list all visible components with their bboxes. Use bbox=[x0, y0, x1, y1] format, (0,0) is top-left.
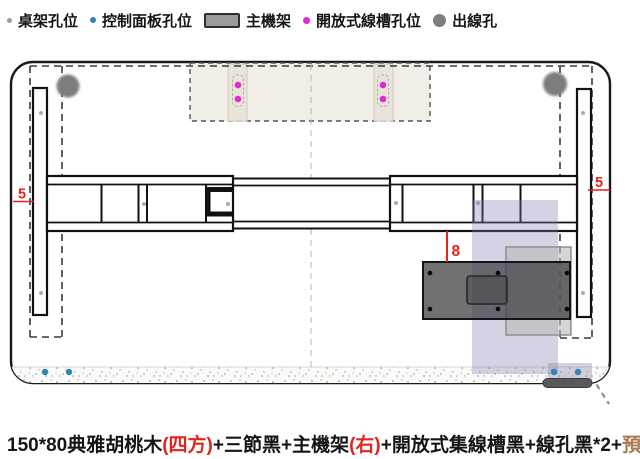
legend-item-desk-frame-holes: 桌架孔位 bbox=[7, 10, 78, 31]
caption-segment: +三節黑+主機架 bbox=[213, 435, 349, 456]
caption-segment: +開放式集線槽黑+線孔黑*2+ bbox=[381, 435, 622, 456]
legend: 桌架孔位 控制面板孔位 主機架 開放式線槽孔位 出線孔 bbox=[7, 8, 497, 32]
caption-segment: 預埋螺母 bbox=[622, 435, 640, 456]
main-unit bbox=[423, 262, 570, 319]
main-unit-motor-box bbox=[467, 276, 507, 304]
cable-tray-hole bbox=[235, 96, 242, 103]
cable-outlet-hole-right bbox=[543, 72, 567, 96]
large-gray-dot-icon bbox=[433, 14, 446, 27]
tray-mount-tab bbox=[228, 64, 247, 121]
cable-tray-hole bbox=[380, 82, 387, 89]
legend-label: 主機架 bbox=[246, 10, 291, 31]
left-leg-beam bbox=[33, 88, 47, 315]
legend-item-cable-tray-holes: 開放式線槽孔位 bbox=[303, 10, 421, 31]
dimension-right-gap: 5 bbox=[595, 175, 603, 191]
legend-label: 開放式線槽孔位 bbox=[316, 10, 421, 31]
cable-tray-hole bbox=[380, 96, 387, 103]
caption-segment: (四方) bbox=[162, 435, 213, 456]
right-leg-beam bbox=[577, 89, 591, 317]
gray-rect-icon bbox=[204, 13, 240, 28]
tray-mount-tab bbox=[374, 64, 393, 121]
legend-label: 控制面板孔位 bbox=[102, 10, 192, 31]
product-caption: 150*80典雅胡桃木(四方)+三節黑+主機架(右)+開放式集線槽黑+線孔黑*2… bbox=[7, 430, 637, 457]
dimension-left-gap: 5 bbox=[18, 187, 26, 203]
blue-dot-icon bbox=[90, 17, 96, 23]
cable-tray-hole bbox=[235, 82, 242, 89]
legend-label: 桌架孔位 bbox=[18, 10, 78, 31]
dimension-main-unit-offset: 8 bbox=[452, 243, 461, 260]
cable-outlet-hole-left bbox=[57, 75, 80, 98]
legend-item-control-panel-holes: 控制面板孔位 bbox=[90, 10, 192, 31]
control-panel-leader-line bbox=[597, 385, 610, 405]
open-cable-tray bbox=[190, 63, 430, 121]
legend-item-main-unit: 主機架 bbox=[204, 10, 291, 31]
magenta-dot-icon bbox=[303, 17, 310, 24]
caption-segment: (右) bbox=[349, 435, 381, 456]
legend-label: 出線孔 bbox=[452, 10, 497, 31]
control-panel-edge-bar bbox=[543, 379, 592, 388]
small-gray-dot-icon bbox=[7, 18, 12, 23]
desk-top-diagram: 5 5 8 bbox=[0, 0, 640, 459]
desk-hole-layout-page: 5 5 8 桌架孔位 控制面板孔位 主機架 開放式線槽孔位 出線孔 bbox=[0, 0, 640, 459]
legend-item-cable-outlet: 出線孔 bbox=[433, 10, 497, 31]
caption-segment: 150*80典雅胡桃木 bbox=[7, 435, 162, 456]
